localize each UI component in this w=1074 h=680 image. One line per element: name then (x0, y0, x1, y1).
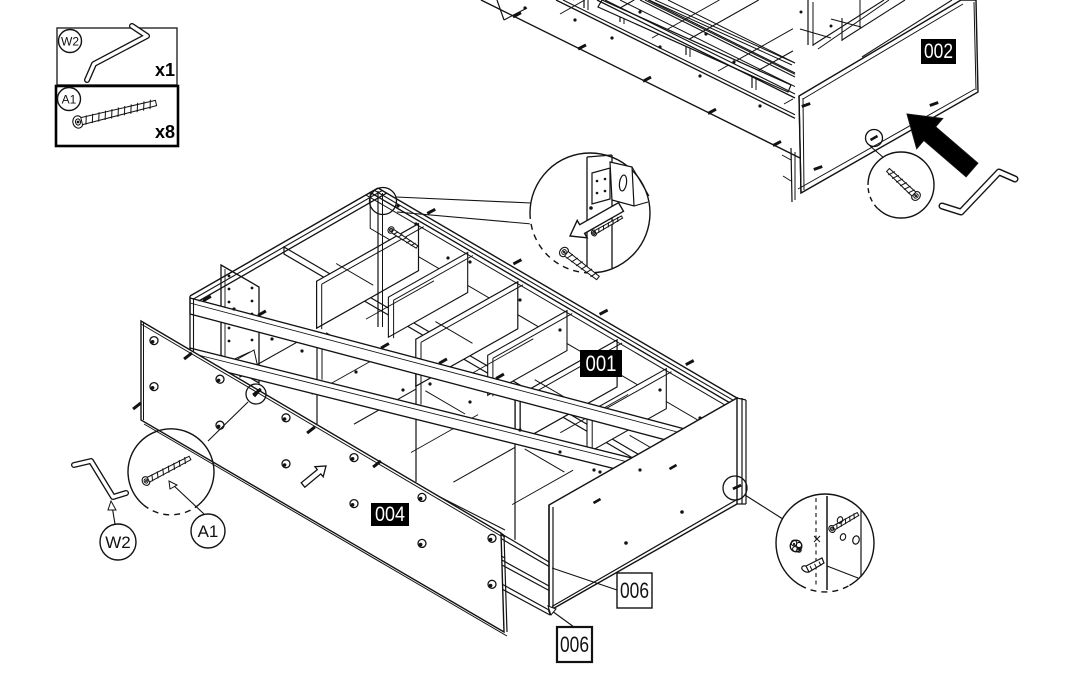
svg-text:A1: A1 (62, 93, 77, 107)
svg-text:x8: x8 (155, 122, 175, 142)
svg-text:A1: A1 (198, 522, 219, 541)
svg-text:x1: x1 (155, 60, 175, 80)
svg-text:001: 001 (586, 351, 617, 376)
svg-text:W2: W2 (105, 533, 131, 552)
svg-text:006: 006 (620, 578, 649, 603)
svg-text:006: 006 (560, 632, 589, 657)
svg-text:W2: W2 (61, 35, 79, 49)
svg-text:002: 002 (924, 40, 953, 63)
svg-text:004: 004 (375, 503, 405, 526)
